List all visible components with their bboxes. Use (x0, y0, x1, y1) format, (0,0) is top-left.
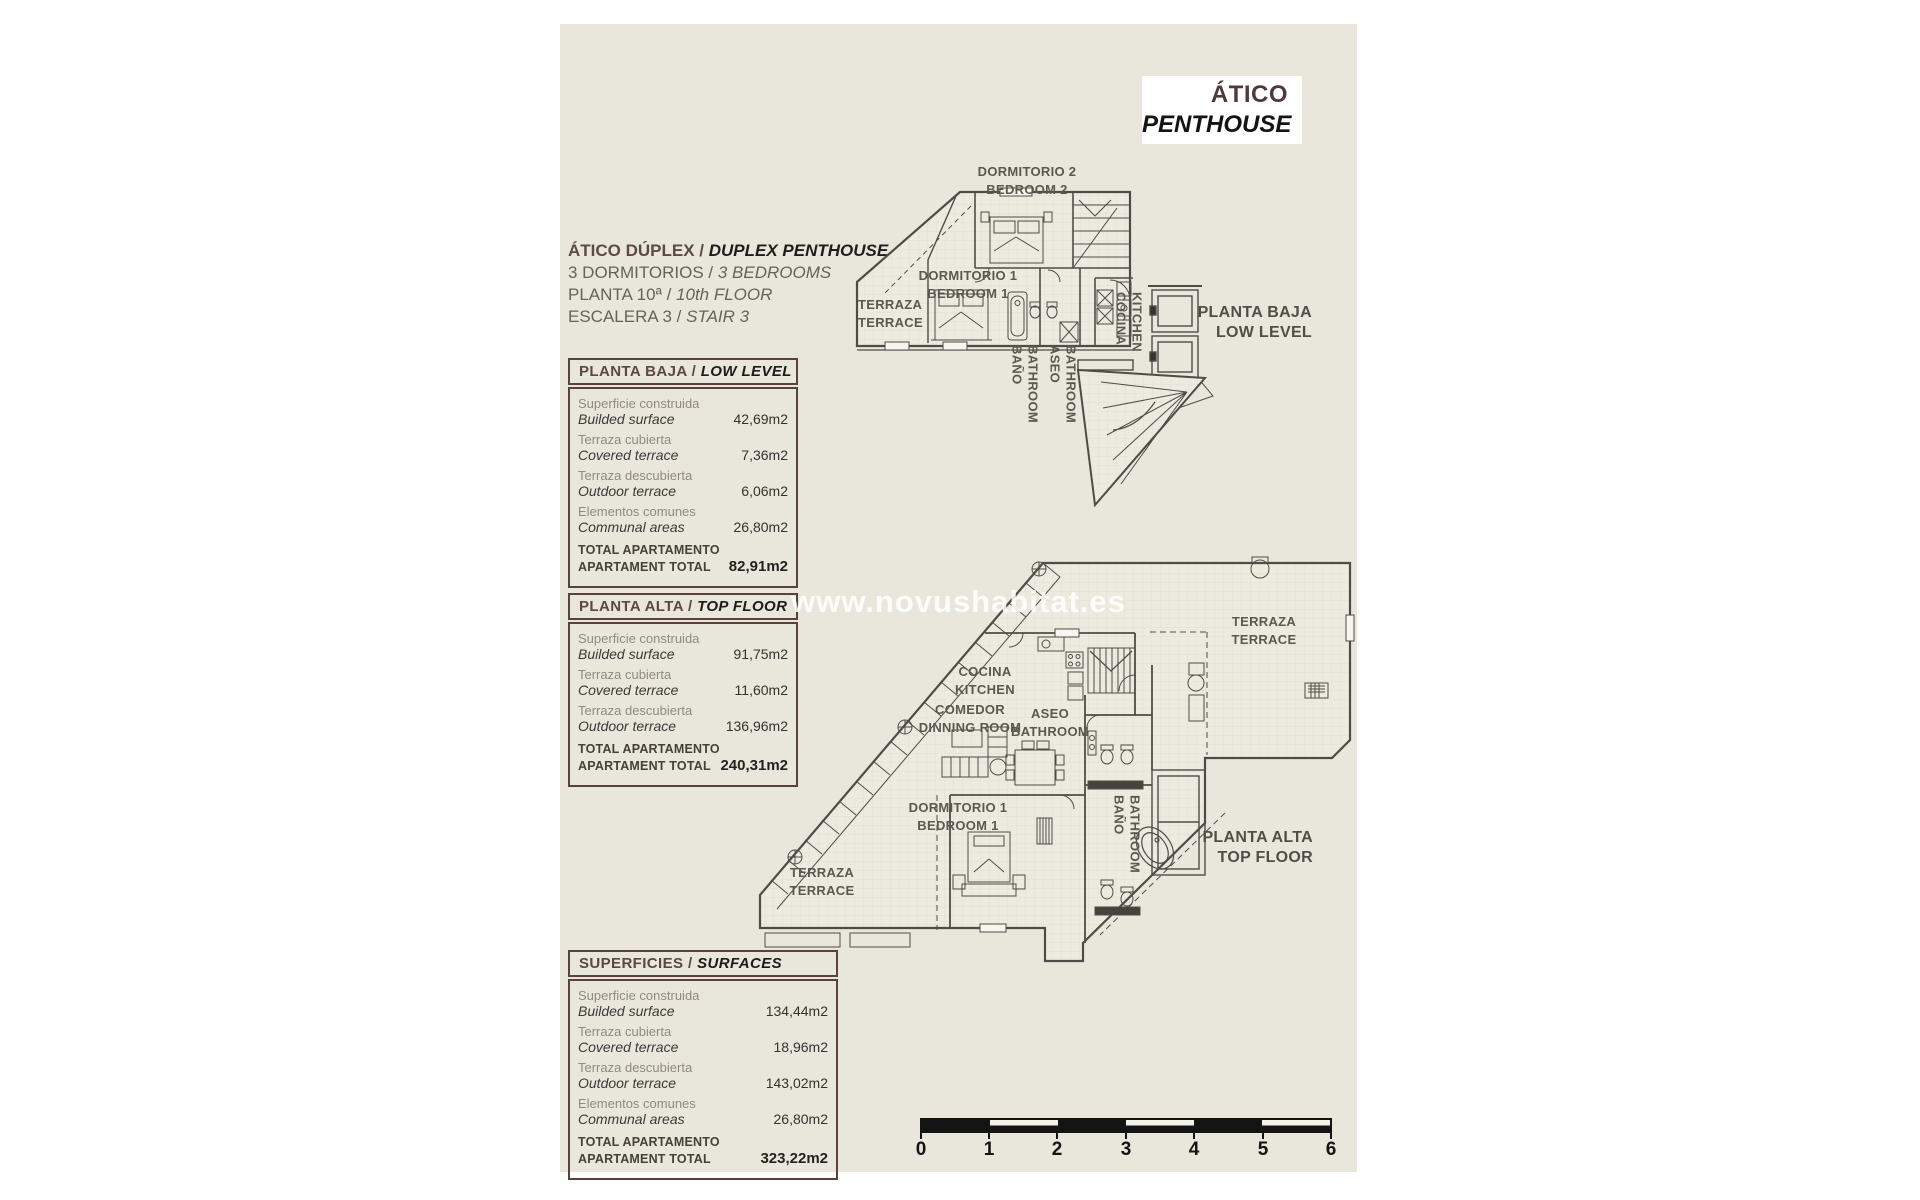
stairs-icon (1078, 360, 1205, 505)
watermark: www.novushabitat.es (560, 584, 1357, 620)
scale-number: 2 (1047, 1139, 1067, 1161)
surface-table-low-level: PLANTA BAJA / LOW LEVEL Superficie const… (568, 358, 798, 588)
table-total-row: TOTAL APARTAMENTOAPARTAMENT TOTAL323,22m… (578, 1135, 828, 1168)
scale-number: 3 (1116, 1139, 1136, 1161)
table-row: Terraza descubiertaOutdoor terrace143,02… (578, 1060, 828, 1092)
table-row: Superficie construidaBuilded surface134,… (578, 988, 828, 1020)
plan-sheet: ÁTICO PENTHOUSE ÁTICO DÚPLEX / DUPLEX PE… (560, 24, 1357, 1172)
plan-caption-low-level: PLANTA BAJA LOW LEVEL (1172, 303, 1312, 343)
scale-number: 6 (1321, 1139, 1341, 1161)
scale-number: 0 (911, 1139, 931, 1161)
table-row: Superficie construidaBuilded surface42,6… (578, 396, 788, 428)
room-label-bedroom1: DORMITORIO 1 BEDROOM 1 (898, 799, 1018, 834)
scale-number: 1 (979, 1139, 999, 1161)
scale-number: 5 (1253, 1139, 1273, 1161)
floor-plan-low-level-drawing (855, 150, 1215, 515)
room-label-aseo: ASEO BATHROOM (1046, 345, 1079, 440)
table-row: Terraza cubiertaCovered terrace18,96m2 (578, 1024, 828, 1056)
room-label-terrace-bottom: TERRAZA TERRACE (772, 864, 872, 899)
table-row: Terraza cubiertaCovered terrace7,36m2 (578, 432, 788, 464)
info-line-type: ÁTICO DÚPLEX / DUPLEX PENTHOUSE (568, 240, 888, 262)
apartment-info: ÁTICO DÚPLEX / DUPLEX PENTHOUSE 3 DORMIT… (568, 240, 888, 328)
table-header: PLANTA BAJA / LOW LEVEL (568, 358, 798, 385)
room-label-kitchen: COCINA KITCHEN (940, 663, 1030, 698)
room-label-bathroom: BAÑO BATHROOM (1008, 345, 1041, 445)
room-label-aseo: ASEO BATHROOM (1000, 705, 1100, 740)
scale-bar: 0 1 2 3 4 5 6 (920, 1118, 1332, 1158)
room-label-kitchen: COCINA KITCHEN (1112, 292, 1145, 372)
title-spanish: ÁTICO (1142, 80, 1288, 110)
title-english: PENTHOUSE (1142, 110, 1288, 140)
title-box: ÁTICO PENTHOUSE (1142, 76, 1302, 144)
room-label-bedroom2: DORMITORIO 2 BEDROOM 2 (967, 163, 1087, 198)
scale-bar-segments (920, 1118, 1332, 1133)
info-line-stair: ESCALERA 3 / STAIR 3 (568, 306, 888, 328)
scale-number: 4 (1184, 1139, 1204, 1161)
planter-boxes (765, 933, 910, 947)
info-line-bedrooms: 3 DORMITORIOS / 3 BEDROOMS (568, 262, 888, 284)
room-label-terrace: TERRAZA TERRACE (858, 296, 928, 331)
plan-caption-top-floor: PLANTA ALTA TOP FLOOR (1173, 828, 1313, 868)
table-row: Elementos comunesCommunal areas26,80m2 (578, 1096, 828, 1128)
room-label-bathroom: BAÑO BATHROOM (1110, 795, 1143, 895)
table-row: Elementos comunesCommunal areas26,80m2 (578, 504, 788, 536)
info-line-floor: PLANTA 10ª / 10th FLOOR (568, 284, 888, 306)
table-row: Terraza descubiertaOutdoor terrace6,06m2 (578, 468, 788, 500)
